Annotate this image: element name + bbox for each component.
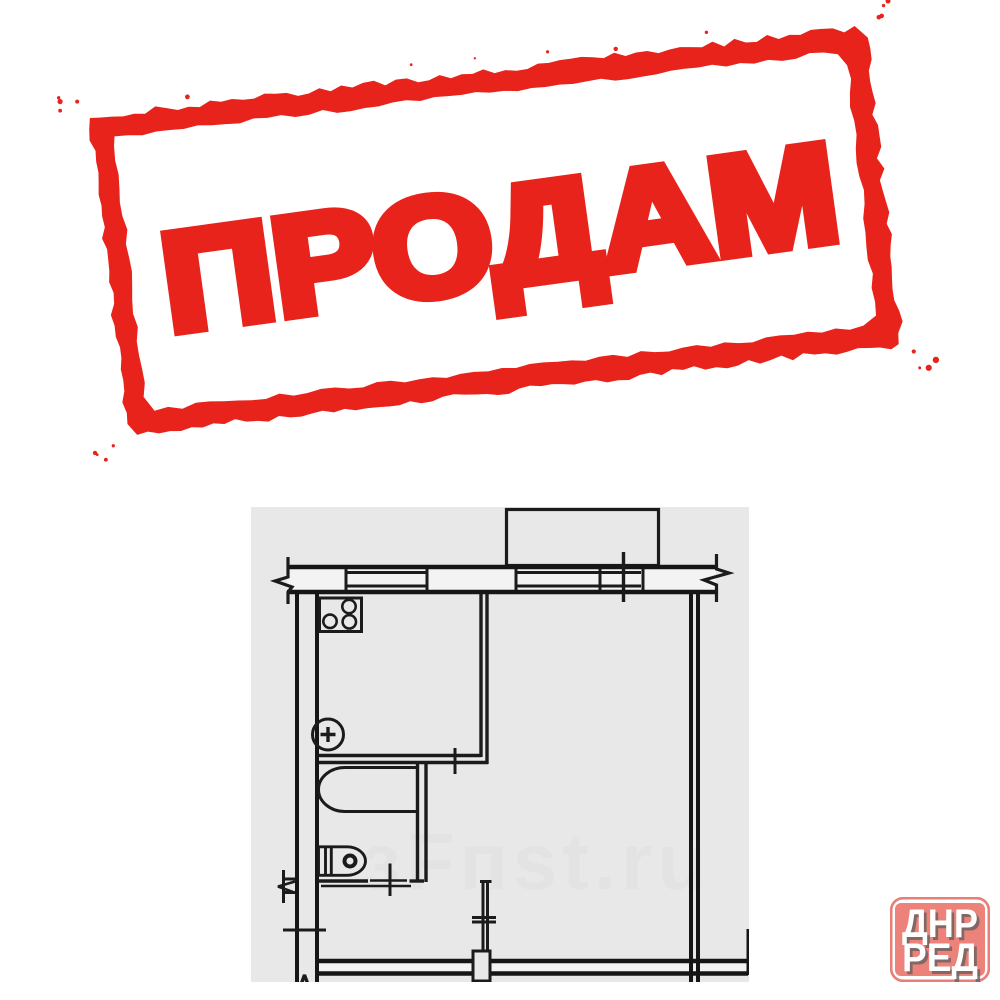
svg-text:ПРОДАМ: ПРОДАМ	[153, 115, 848, 361]
svg-text:зFпst.ru: зFпst.ru	[361, 817, 711, 906]
svg-text:РЕД: РЕД	[902, 936, 978, 980]
